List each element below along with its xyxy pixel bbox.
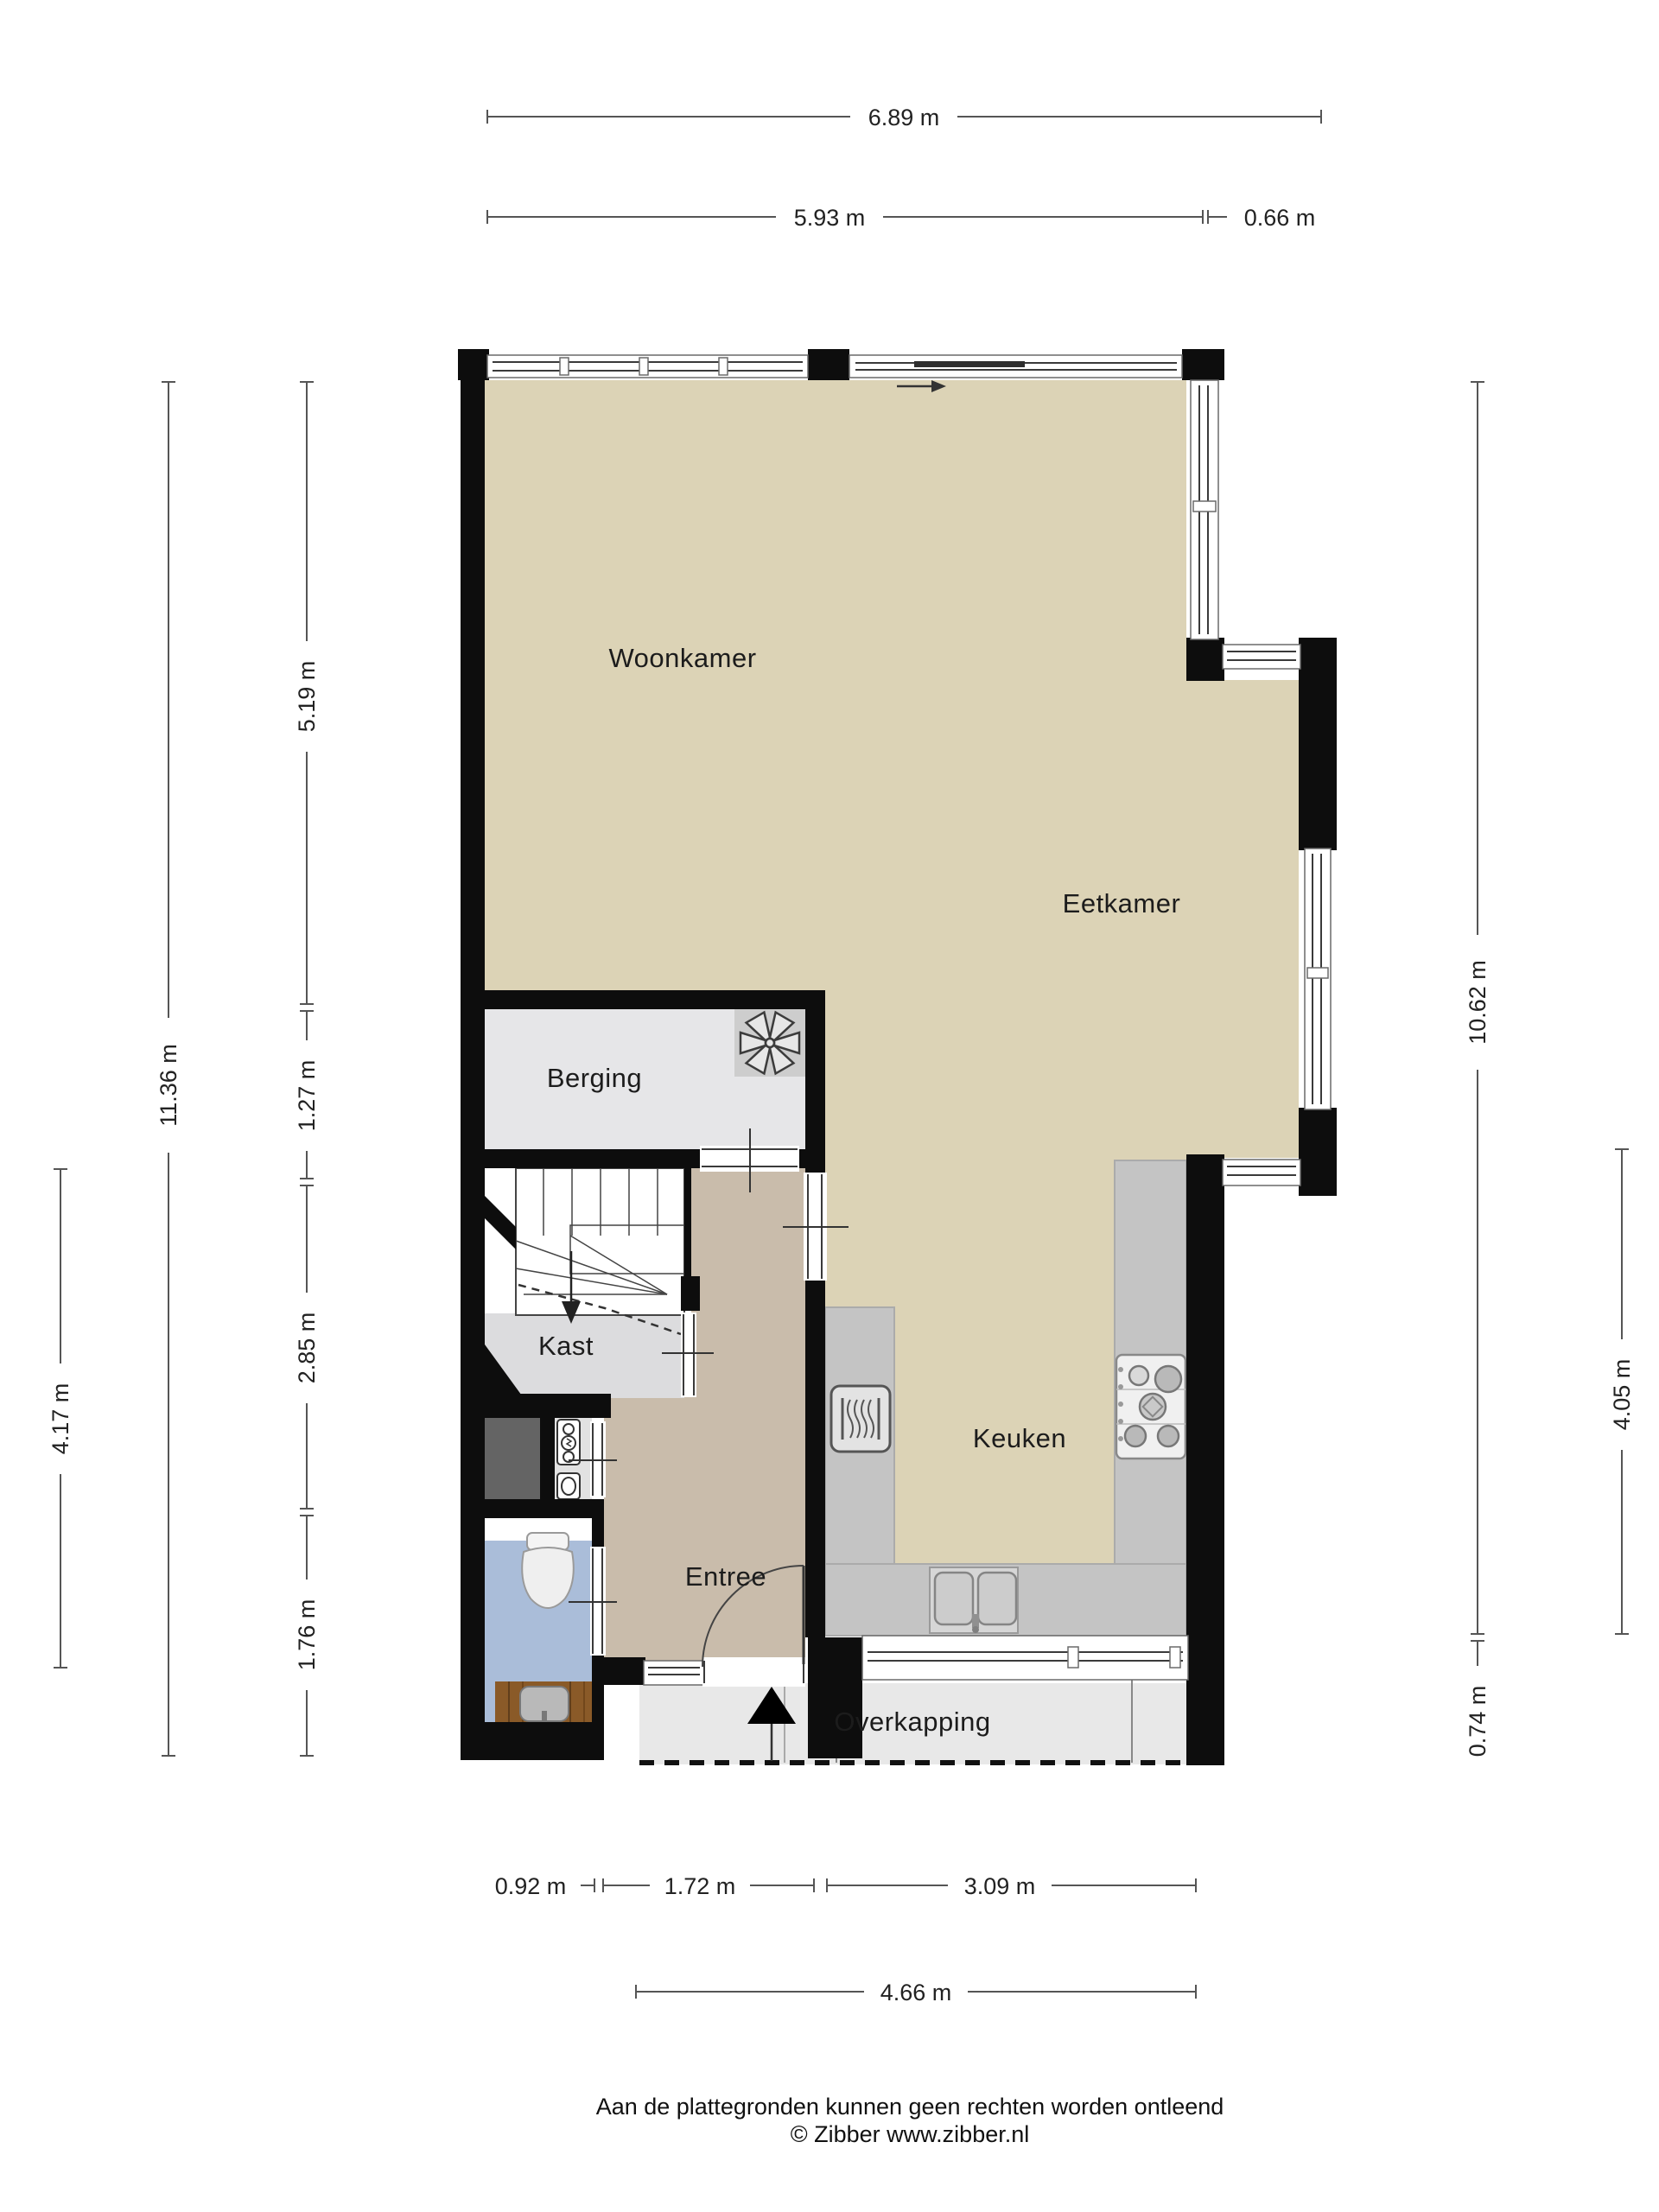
dim-top-right: 0.66 m bbox=[1208, 201, 1332, 232]
stove-icon bbox=[1116, 1355, 1185, 1459]
window-entree-sidelight bbox=[644, 1661, 704, 1685]
dim-right-seg1: 4.05 m bbox=[1606, 1149, 1637, 1634]
footer-copyright: © Zibber www.zibber.nl bbox=[791, 2121, 1030, 2147]
room-label-keuken: Keuken bbox=[973, 1423, 1066, 1453]
dim-label: 0.74 m bbox=[1465, 1686, 1491, 1758]
dim-label: 4.17 m bbox=[48, 1383, 73, 1455]
room-label-overkapping: Overkapping bbox=[834, 1707, 990, 1737]
dim-label: 10.62 m bbox=[1465, 960, 1491, 1045]
dim-label: 6.89 m bbox=[868, 105, 940, 130]
room-label-entree: Entree bbox=[685, 1561, 766, 1592]
sink-icon bbox=[930, 1567, 1018, 1633]
dim-top-total: 6.89 m bbox=[487, 101, 1321, 132]
dim-bottom-seg2: 1.72 m bbox=[603, 1870, 814, 1901]
dim-label: 2.85 m bbox=[294, 1313, 320, 1384]
dim-left-seg4: 1.76 m bbox=[291, 1516, 322, 1756]
window-kitchen-front bbox=[862, 1636, 1188, 1680]
dim-label: 0.66 m bbox=[1244, 205, 1316, 231]
dim-label: 5.93 m bbox=[794, 205, 866, 231]
dim-left-inner: 4.17 m bbox=[45, 1169, 76, 1668]
footer-disclaimer: Aan de plattegronden kunnen geen rechten… bbox=[596, 2094, 1224, 2120]
room-label-eetkamer: Eetkamer bbox=[1063, 888, 1181, 918]
dim-left-seg3: 2.85 m bbox=[291, 1185, 322, 1509]
dim-left-seg1: 5.19 m bbox=[291, 382, 322, 1004]
dim-label: 5.19 m bbox=[294, 661, 320, 733]
window-bay-right bbox=[1305, 849, 1331, 1109]
dim-label: 0.92 m bbox=[495, 1873, 567, 1899]
dim-label: 4.66 m bbox=[880, 1980, 952, 2005]
room-label-berging: Berging bbox=[547, 1063, 642, 1093]
dim-top-main: 5.93 m bbox=[487, 201, 1203, 232]
dim-label: 4.05 m bbox=[1609, 1359, 1635, 1431]
window-bay-bottom bbox=[1223, 1160, 1300, 1185]
dim-right-seg2: 0.74 m bbox=[1462, 1641, 1493, 1777]
doorbell-icon bbox=[557, 1473, 580, 1499]
dim-right-total: 10.62 m bbox=[1462, 382, 1493, 1634]
floor-plan-svg: Woonkamer Eetkamer Berging Kast Entree K… bbox=[0, 0, 1659, 2212]
dim-label: 3.09 m bbox=[964, 1873, 1036, 1899]
oven-icon bbox=[831, 1386, 890, 1452]
dim-left-seg2: 1.27 m bbox=[291, 1011, 322, 1179]
room-label-kast: Kast bbox=[538, 1331, 594, 1361]
dim-label: 1.76 m bbox=[294, 1599, 320, 1671]
meter-panel-icon bbox=[557, 1420, 580, 1465]
floor-meterkast bbox=[482, 1418, 540, 1501]
stairs bbox=[516, 1168, 684, 1334]
window-right-upper bbox=[1191, 380, 1218, 639]
floor-plan-page: Woonkamer Eetkamer Berging Kast Entree K… bbox=[0, 0, 1659, 2212]
dim-bottom-seg3: 3.09 m bbox=[827, 1870, 1196, 1901]
room-label-woonkamer: Woonkamer bbox=[608, 643, 756, 673]
dim-label: 11.36 m bbox=[156, 1044, 181, 1127]
dim-label: 1.27 m bbox=[294, 1060, 320, 1132]
toilet-icon bbox=[522, 1533, 574, 1608]
washbasin-icon bbox=[495, 1681, 596, 1724]
dim-bottom-total: 4.66 m bbox=[636, 1976, 1196, 2007]
window-top-left bbox=[487, 355, 808, 378]
footer: Aan de plattegronden kunnen geen rechten… bbox=[596, 2094, 1224, 2147]
dim-label: 1.72 m bbox=[664, 1873, 736, 1899]
window-bay-top bbox=[1223, 645, 1300, 669]
dim-left-total: 11.36 m bbox=[153, 382, 184, 1756]
dim-bottom-seg1: 0.92 m bbox=[480, 1870, 594, 1901]
